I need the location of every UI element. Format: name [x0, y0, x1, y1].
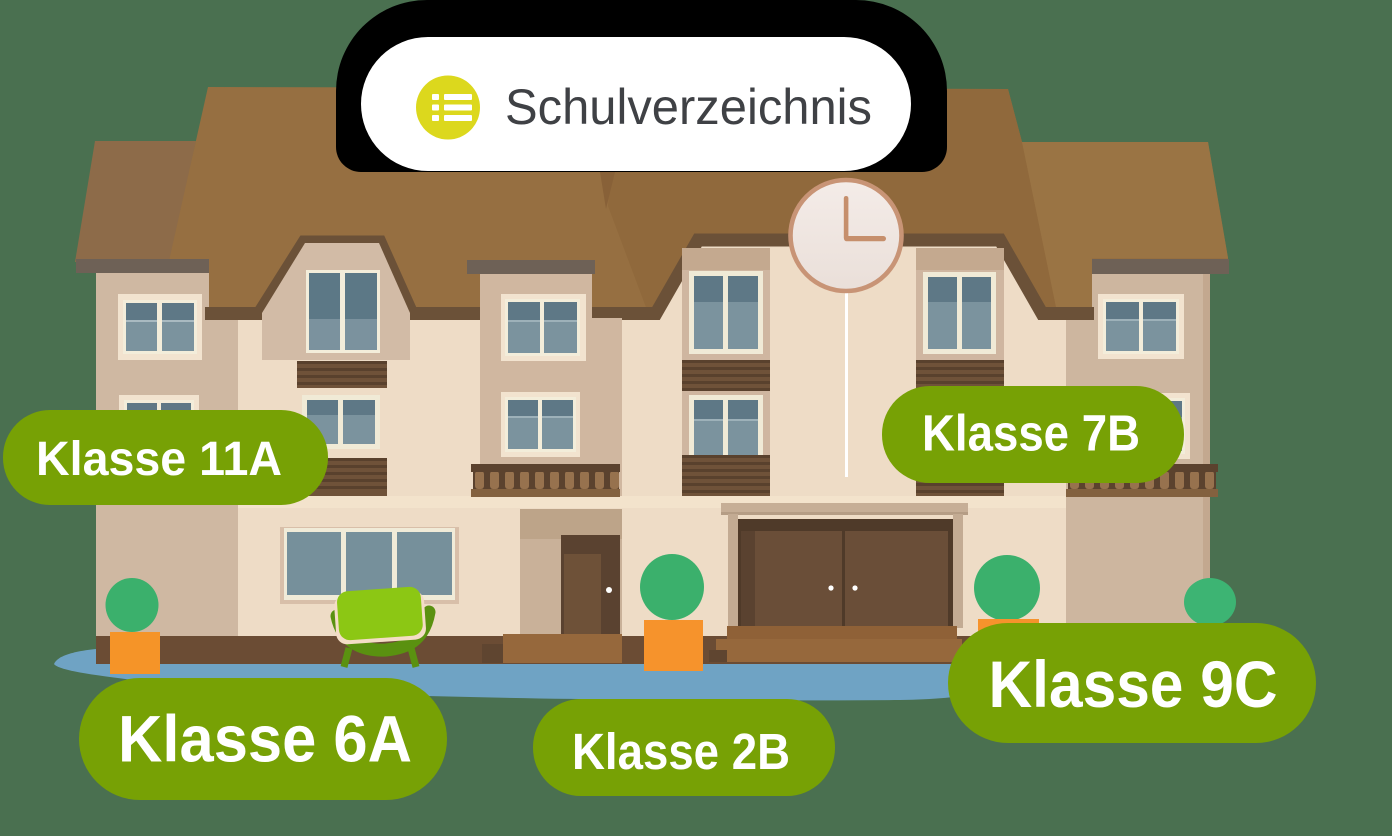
svg-text:Klasse 7B: Klasse 7B	[922, 405, 1140, 462]
svg-text:Schulverzeichnis: Schulverzeichnis	[505, 79, 872, 135]
svg-text:Klasse 6A: Klasse 6A	[118, 702, 412, 776]
svg-text:Klasse 9C: Klasse 9C	[989, 647, 1278, 721]
svg-text:Klasse 2B: Klasse 2B	[572, 723, 790, 780]
svg-text:Klasse 11A: Klasse 11A	[36, 433, 282, 486]
